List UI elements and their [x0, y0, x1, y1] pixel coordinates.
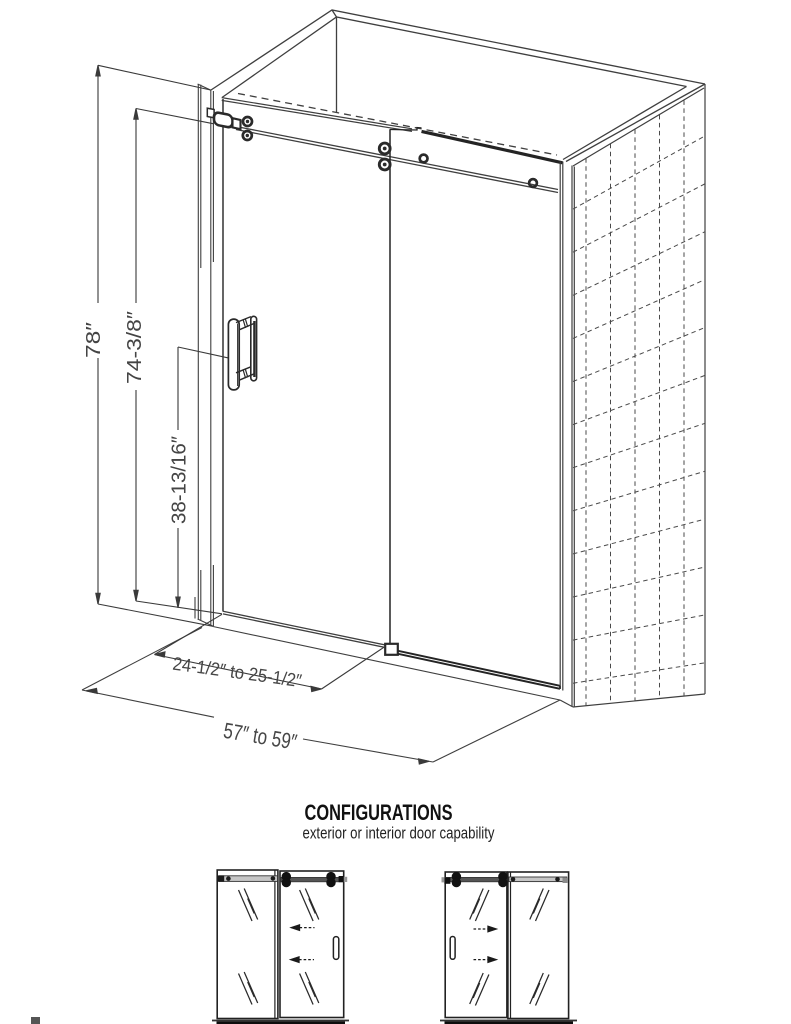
svg-text:38-13/16″: 38-13/16″ — [169, 436, 191, 524]
svg-text:24-1/2″ to 25-1/2″: 24-1/2″ to 25-1/2″ — [171, 653, 303, 692]
svg-text:74-3/8″: 74-3/8″ — [124, 311, 146, 384]
svg-text:57″ to 59″: 57″ to 59″ — [222, 718, 299, 755]
svg-text:78″: 78″ — [83, 322, 105, 358]
svg-text:exterior or interior door capa: exterior or interior door capability — [303, 824, 495, 843]
svg-text:CONFIGURATIONS: CONFIGURATIONS — [305, 800, 453, 825]
